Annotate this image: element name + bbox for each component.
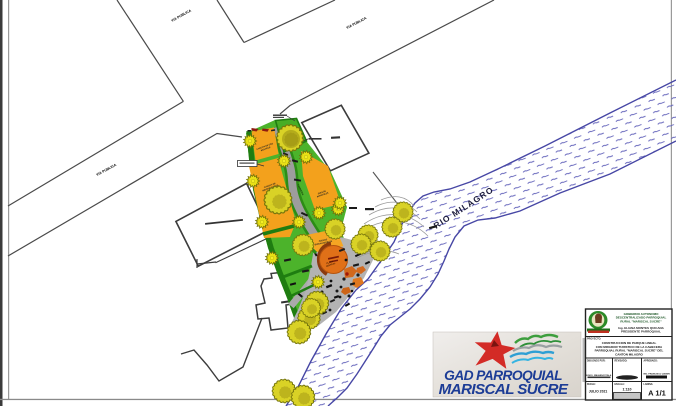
svg-text:CANTON MILAGRO: CANTON MILAGRO [615,352,643,356]
svg-text:REVISADO:: REVISADO: [615,360,628,363]
svg-text:RURAL "MARISCAL SUCRE": RURAL "MARISCAL SUCRE" [620,319,662,323]
svg-text:EGDO. WASHINGTON A.: EGDO. WASHINGTON A. [586,374,612,377]
svg-text:LAMINA:: LAMINA: [644,383,654,386]
svg-text:PROYECTO:: PROYECTO: [587,338,601,341]
svg-text:PRESIDENTE PARROQUIAL: PRESIDENTE PARROQUIAL [621,330,661,334]
svg-text:MARISCAL SUCRE: MARISCAL SUCRE [439,381,569,398]
svg-text:FECHA:: FECHA: [587,383,596,386]
svg-text:APROBADO:: APROBADO: [644,360,658,363]
svg-text:1:110: 1:110 [623,388,632,392]
svg-text:ESCALA:: ESCALA: [615,383,625,386]
svg-text:A 1/1: A 1/1 [648,389,666,398]
svg-text:JULIO 2021: JULIO 2021 [589,390,608,394]
svg-text:DIBUJADO POR:: DIBUJADO POR: [587,360,606,363]
svg-text:ING. FRANCISCO JAVIER: ING. FRANCISCO JAVIER [643,373,670,376]
